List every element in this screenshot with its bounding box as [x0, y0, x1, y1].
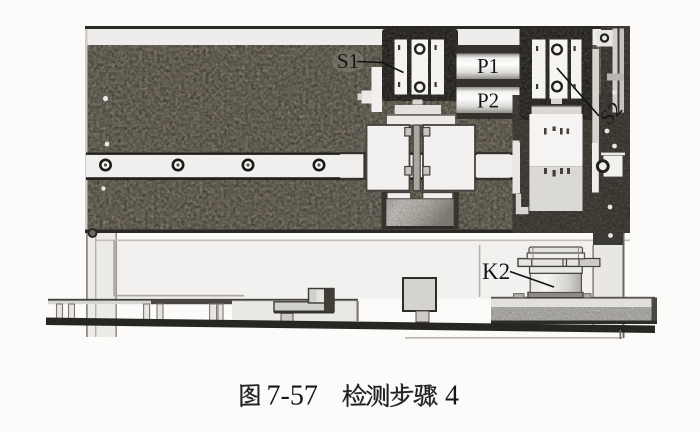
- svg-text:K2: K2: [482, 259, 510, 284]
- svg-text:P2: P2: [477, 89, 499, 113]
- svg-text:P1: P1: [477, 54, 499, 78]
- svg-text:4: 4: [445, 381, 459, 412]
- svg-text:S1: S1: [337, 49, 359, 73]
- svg-text:7-57: 7-57: [267, 381, 318, 412]
